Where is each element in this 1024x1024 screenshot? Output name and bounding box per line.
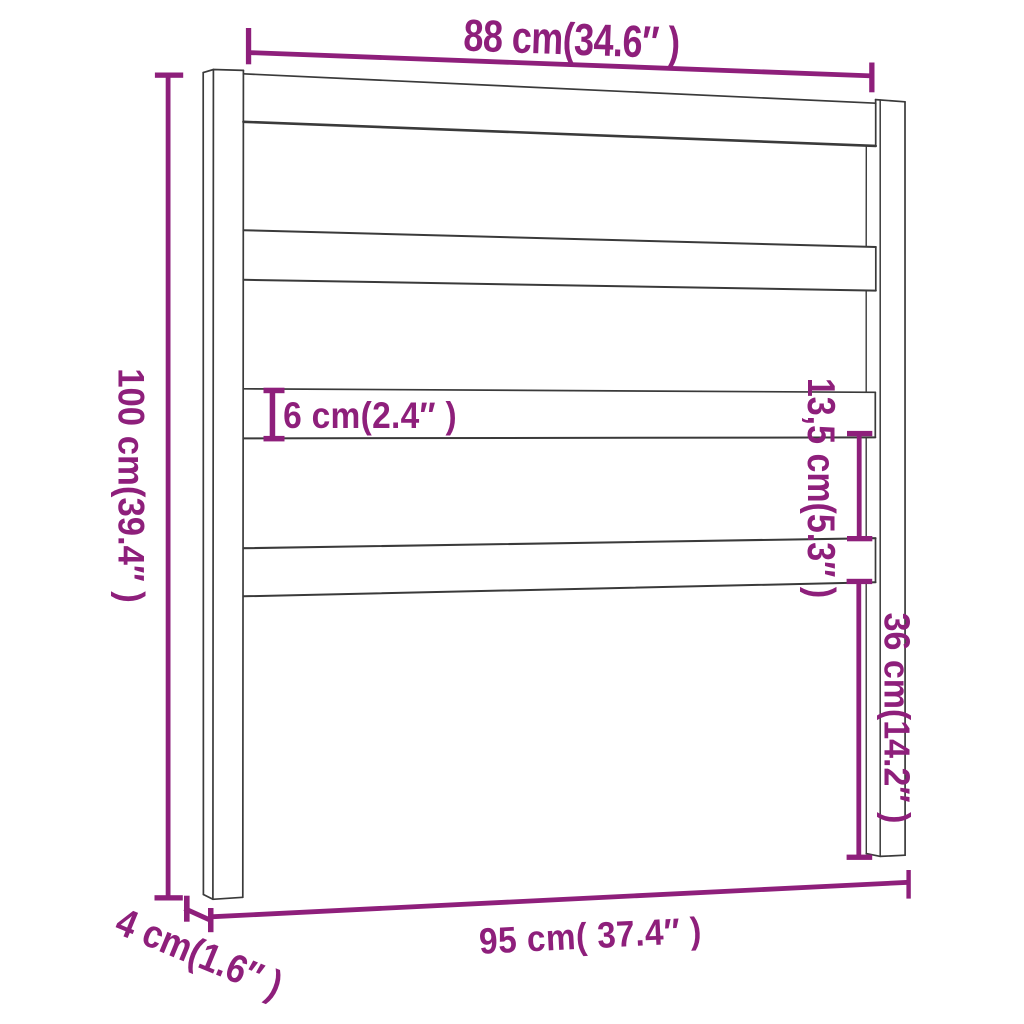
svg-text:6 cm(2.4″ ): 6 cm(2.4″ ) — [283, 396, 457, 437]
svg-text:100 cm(39.4″ ): 100 cm(39.4″ ) — [110, 368, 153, 603]
svg-text:13,5 cm(5.3″ ): 13,5 cm(5.3″ ) — [799, 378, 843, 598]
svg-text:36 cm(14.2″ ): 36 cm(14.2″ ) — [876, 613, 916, 824]
svg-text:88 cm(34.6″ ): 88 cm(34.6″ ) — [463, 10, 681, 69]
